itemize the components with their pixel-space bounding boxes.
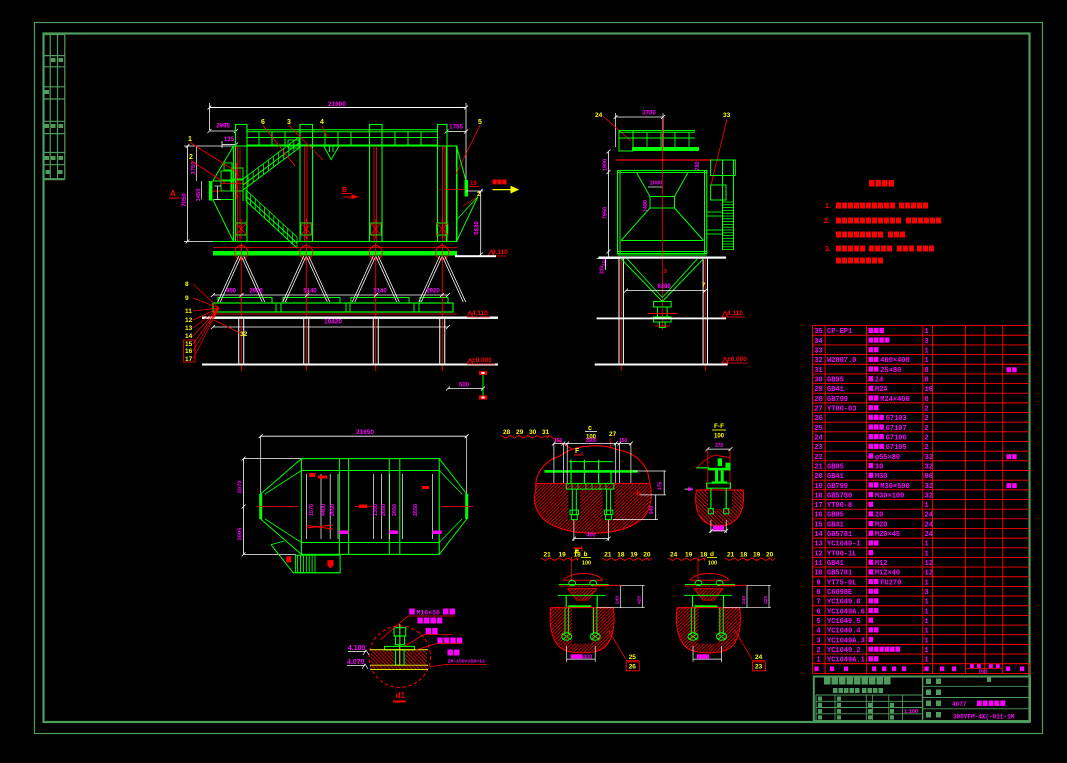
svg-text:31: 31: [542, 429, 550, 436]
svg-text:GB799: GB799: [827, 483, 848, 491]
svg-text:8: 8: [925, 367, 929, 375]
svg-text:YC1049.4: YC1049.4: [827, 628, 861, 636]
svg-text:16: 16: [814, 512, 822, 520]
svg-text:18: 18: [814, 492, 822, 500]
svg-text:26: 26: [629, 663, 637, 670]
svg-text:30: 30: [529, 429, 537, 436]
svg-text:YT00-03: YT00-03: [827, 405, 856, 413]
svg-text:2: 2: [925, 444, 929, 452]
svg-text:M12: M12: [875, 560, 888, 568]
svg-text:1: 1: [925, 357, 929, 365]
svg-text:G7103: G7103: [886, 415, 907, 423]
svg-text:300YFM-4X(-011-1M: 300YFM-4X(-011-1M: [953, 714, 1015, 721]
svg-text:3070: 3070: [238, 481, 244, 494]
svg-text:18: 18: [700, 552, 708, 559]
svg-text:1: 1: [925, 608, 929, 616]
svg-text:GB799: GB799: [827, 396, 848, 404]
svg-text:B: B: [342, 187, 347, 194]
svg-text:12: 12: [185, 317, 193, 324]
svg-text:27: 27: [609, 431, 617, 438]
svg-text:YC1049.2: YC1049.2: [827, 647, 861, 655]
svg-text:4: 4: [816, 628, 820, 636]
svg-text:W2007.0: W2007.0: [827, 357, 856, 365]
svg-text:24: 24: [814, 434, 822, 442]
svg-text:1: 1: [925, 502, 929, 510]
svg-text:17: 17: [814, 502, 822, 510]
svg-text:GB5780: GB5780: [827, 492, 852, 500]
svg-text:24: 24: [875, 377, 883, 385]
svg-text:96: 96: [925, 473, 933, 481]
svg-text:10: 10: [814, 570, 822, 578]
svg-text:400×400: 400×400: [880, 357, 909, 365]
svg-text:M24×400: M24×400: [880, 396, 909, 404]
svg-text:M20×45: M20×45: [875, 531, 900, 539]
svg-text:24: 24: [595, 112, 603, 119]
svg-text:30: 30: [814, 377, 822, 385]
svg-text:28: 28: [814, 396, 822, 404]
svg-text:14: 14: [185, 333, 193, 340]
svg-text:32: 32: [240, 331, 248, 338]
svg-text:25: 25: [814, 425, 822, 433]
svg-text:GB41: GB41: [827, 560, 844, 568]
svg-text:18: 18: [617, 552, 625, 559]
svg-text:2920: 2920: [249, 289, 263, 295]
svg-text:9: 9: [185, 295, 189, 302]
svg-text:370: 370: [715, 443, 724, 449]
svg-text:8: 8: [185, 281, 189, 288]
svg-text:3: 3: [925, 589, 929, 597]
svg-text:YC1049.8: YC1049.8: [827, 599, 861, 607]
svg-text:940: 940: [649, 506, 655, 515]
svg-text:5: 5: [478, 119, 482, 126]
svg-text:23: 23: [814, 444, 822, 452]
svg-text:F: F: [575, 550, 580, 557]
svg-text:2000: 2000: [650, 181, 662, 187]
svg-text:100: 100: [714, 434, 725, 440]
svg-text:11: 11: [814, 560, 822, 568]
svg-text:20: 20: [643, 552, 651, 559]
svg-text:5: 5: [816, 618, 820, 626]
svg-text:21600: 21600: [328, 101, 346, 108]
svg-text:5140: 5140: [303, 289, 317, 295]
svg-text:7: 7: [816, 599, 820, 607]
svg-text:20: 20: [814, 473, 822, 481]
svg-text:29: 29: [814, 386, 822, 394]
svg-text:11: 11: [185, 308, 192, 315]
svg-text:6: 6: [261, 119, 265, 126]
svg-text:YC1049A.3: YC1049A.3: [827, 637, 865, 645]
svg-text:7950: 7950: [603, 207, 609, 219]
svg-text:2M-150×150×12: 2M-150×150×12: [448, 659, 486, 665]
svg-text:d: d: [710, 551, 714, 558]
svg-text:150: 150: [554, 438, 563, 444]
svg-text:1: 1: [925, 628, 929, 636]
svg-text:M30: M30: [875, 473, 888, 481]
svg-text:8: 8: [925, 377, 929, 385]
svg-text:1: 1: [925, 550, 929, 558]
svg-text:GB5781: GB5781: [827, 570, 852, 578]
svg-text:21650: 21650: [356, 429, 374, 436]
svg-text:GB95: GB95: [827, 377, 844, 385]
svg-text:FU270: FU270: [880, 579, 901, 587]
svg-text:1: 1: [925, 328, 929, 336]
svg-text:3: 3: [287, 119, 291, 126]
svg-text:28: 28: [503, 429, 511, 436]
svg-text:24: 24: [925, 512, 933, 520]
svg-text:32: 32: [925, 463, 933, 471]
svg-text:4077: 4077: [952, 701, 967, 708]
svg-text:3.: 3.: [825, 246, 831, 253]
svg-text:2: 2: [816, 647, 820, 655]
svg-text:22: 22: [814, 454, 822, 462]
svg-text:YT00-1L: YT00-1L: [827, 550, 856, 558]
svg-text:100: 100: [582, 561, 591, 567]
svg-text:4.110: 4.110: [727, 310, 743, 317]
svg-text:GB95: GB95: [827, 512, 844, 520]
svg-text:2: 2: [925, 415, 929, 423]
svg-text:25: 25: [629, 654, 637, 661]
svg-text:G7107: G7107: [886, 425, 907, 433]
svg-text:1450: 1450: [196, 189, 202, 202]
svg-text:31: 31: [814, 367, 822, 375]
svg-text:9: 9: [816, 579, 820, 587]
svg-text:14: 14: [814, 531, 822, 539]
svg-text:φ55×80: φ55×80: [875, 454, 900, 462]
svg-text:400: 400: [583, 655, 592, 661]
svg-text:19: 19: [685, 552, 693, 559]
svg-text:24: 24: [925, 521, 933, 529]
svg-text:YT00-8: YT00-8: [827, 502, 852, 510]
svg-text:3700: 3700: [642, 110, 656, 117]
svg-text:M12×40: M12×40: [875, 570, 900, 578]
svg-text:3: 3: [816, 637, 820, 645]
svg-text:33: 33: [814, 348, 822, 356]
svg-text:32: 32: [925, 454, 933, 462]
svg-text:1: 1: [925, 541, 929, 549]
svg-text:15: 15: [185, 341, 193, 348]
svg-text:950: 950: [226, 289, 237, 295]
svg-text:1: 1: [925, 637, 929, 645]
svg-text:A: A: [170, 189, 176, 198]
svg-text:GB5781: GB5781: [827, 531, 852, 539]
svg-text:1480: 1480: [643, 200, 649, 212]
svg-text:8: 8: [925, 396, 929, 404]
svg-text:8: 8: [816, 589, 820, 597]
svg-text:32: 32: [814, 357, 822, 365]
svg-text:G7105: G7105: [886, 444, 907, 452]
svg-text:2995: 2995: [216, 123, 230, 130]
svg-text:(kg): (kg): [979, 669, 988, 674]
svg-text:2: 2: [925, 434, 929, 442]
svg-text:27: 27: [814, 405, 822, 413]
svg-text:100: 100: [708, 561, 717, 567]
svg-text:2: 2: [189, 154, 193, 161]
svg-text:20: 20: [766, 552, 774, 559]
svg-text:1: 1: [925, 579, 929, 587]
svg-text:29: 29: [516, 429, 524, 436]
svg-text:23: 23: [755, 663, 763, 670]
svg-text:12: 12: [814, 550, 822, 558]
svg-text:19: 19: [630, 552, 638, 559]
svg-text:YT75-9L: YT75-9L: [827, 579, 856, 587]
svg-text:1.: 1.: [825, 203, 831, 210]
svg-text:2650: 2650: [392, 504, 398, 516]
svg-text:2650: 2650: [381, 504, 387, 516]
svg-text:10420: 10420: [324, 319, 342, 326]
svg-text:2.: 2.: [824, 218, 830, 225]
svg-text:4400: 4400: [321, 504, 327, 516]
svg-text:13: 13: [185, 325, 193, 332]
svg-text:1900: 1900: [603, 159, 609, 171]
svg-text:2: 2: [925, 405, 929, 413]
svg-text:2600: 2600: [585, 438, 596, 444]
svg-text:13: 13: [814, 541, 822, 549]
svg-text:33: 33: [723, 112, 731, 119]
svg-text:YC1049-1: YC1049-1: [827, 541, 861, 549]
svg-text:4.110: 4.110: [472, 310, 488, 317]
svg-text:1: 1: [925, 348, 929, 356]
svg-text:425: 425: [763, 596, 769, 604]
svg-text:3005: 3005: [238, 527, 244, 541]
svg-text:5: 5: [664, 269, 667, 275]
svg-text:7050: 7050: [182, 193, 188, 207]
svg-text:26: 26: [814, 415, 822, 423]
svg-text:1: 1: [925, 599, 929, 607]
svg-text:12: 12: [925, 560, 933, 568]
svg-text:G7106: G7106: [886, 434, 907, 442]
svg-text:YC1049.5: YC1049.5: [827, 618, 861, 626]
svg-text:2650: 2650: [413, 504, 419, 516]
svg-text:c: c: [588, 425, 592, 432]
svg-text:12: 12: [925, 570, 933, 578]
svg-text:21: 21: [604, 552, 612, 559]
svg-text:CP-EP1: CP-EP1: [827, 328, 852, 336]
svg-text:GB95: GB95: [827, 463, 844, 471]
svg-text:18: 18: [740, 552, 748, 559]
svg-text:1:100: 1:100: [904, 709, 918, 715]
svg-text:1755: 1755: [449, 124, 463, 131]
svg-text:±0.000: ±0.000: [727, 356, 747, 363]
svg-text:5140: 5140: [373, 289, 387, 295]
svg-text:±0.000: ±0.000: [472, 357, 492, 364]
svg-text:240: 240: [741, 596, 747, 604]
svg-text:21: 21: [544, 552, 552, 559]
svg-text:34: 34: [814, 338, 822, 346]
svg-text:4: 4: [320, 119, 324, 126]
svg-text:780: 780: [695, 161, 701, 170]
svg-text:400: 400: [586, 533, 595, 539]
svg-text:32: 32: [925, 483, 933, 491]
svg-text:d1: d1: [396, 691, 406, 700]
svg-text:M30×500: M30×500: [880, 483, 909, 491]
svg-text:M24: M24: [875, 386, 888, 394]
svg-text:M16×50: M16×50: [417, 610, 441, 617]
svg-text:25×80: 25×80: [880, 367, 901, 375]
svg-text:20: 20: [875, 512, 883, 520]
svg-text:19: 19: [814, 483, 822, 491]
svg-text:19: 19: [559, 552, 567, 559]
svg-text:M30×100: M30×100: [875, 492, 904, 500]
svg-text:C6098E: C6098E: [827, 589, 852, 597]
svg-text:1: 1: [925, 647, 929, 655]
svg-text:3: 3: [925, 338, 929, 346]
svg-text:5630: 5630: [475, 221, 481, 235]
svg-text:475: 475: [658, 482, 664, 491]
svg-text:4.100: 4.100: [348, 645, 366, 652]
svg-text:GB41: GB41: [827, 473, 844, 481]
svg-text:30: 30: [875, 463, 883, 471]
svg-text:F-F: F-F: [714, 423, 724, 430]
svg-text:500: 500: [459, 383, 470, 389]
svg-text:2920: 2920: [426, 289, 440, 295]
svg-text:240: 240: [615, 596, 621, 604]
svg-text:330: 330: [600, 266, 606, 275]
svg-text:15: 15: [814, 521, 822, 529]
svg-text:19: 19: [753, 552, 761, 559]
svg-text:6: 6: [816, 608, 820, 616]
svg-text:425: 425: [637, 596, 643, 604]
svg-text:b: b: [584, 551, 588, 558]
svg-text:21: 21: [814, 463, 822, 471]
svg-text:1570: 1570: [309, 504, 315, 516]
svg-text:24: 24: [670, 552, 678, 559]
svg-text:16: 16: [925, 386, 933, 394]
svg-text:1: 1: [188, 136, 192, 143]
svg-text:21: 21: [727, 552, 735, 559]
svg-text:YC1049A.6: YC1049A.6: [827, 608, 865, 616]
svg-text:F: F: [575, 448, 580, 455]
svg-text:24: 24: [755, 654, 763, 661]
svg-text:9.110: 9.110: [492, 249, 508, 256]
svg-text:1: 1: [925, 618, 929, 626]
svg-text:1350: 1350: [373, 504, 379, 516]
svg-text:6380: 6380: [657, 284, 671, 290]
svg-text:150: 150: [619, 438, 628, 444]
svg-text:35: 35: [814, 328, 822, 336]
svg-text:16: 16: [185, 348, 193, 355]
svg-text:2650: 2650: [330, 504, 336, 516]
svg-text:GB41: GB41: [827, 386, 844, 394]
svg-text:2: 2: [925, 425, 929, 433]
svg-text:24: 24: [925, 531, 933, 539]
svg-text:M20: M20: [875, 521, 888, 529]
svg-text:GB41: GB41: [827, 521, 844, 529]
svg-text:4.070: 4.070: [347, 659, 365, 666]
svg-text:32: 32: [925, 492, 933, 500]
svg-text:135: 135: [224, 136, 235, 143]
